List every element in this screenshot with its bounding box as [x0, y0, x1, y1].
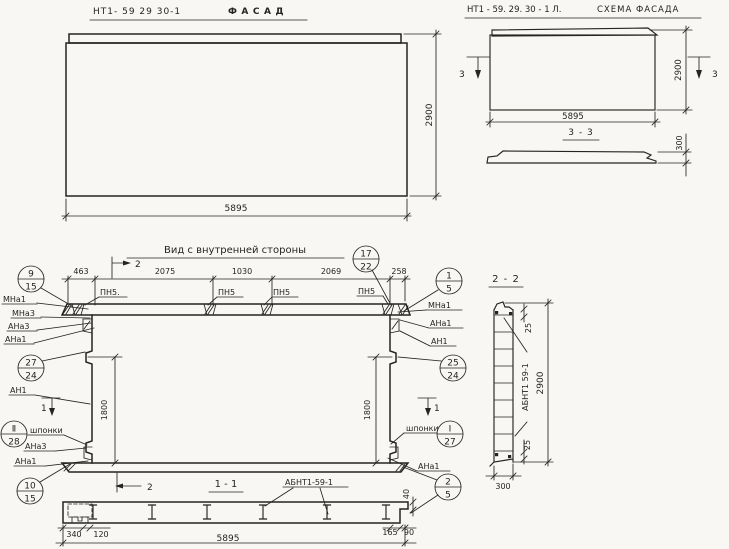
inner-view-title: Вид с внутренней стороны: [164, 245, 306, 256]
side-dim-left: 1800: [88, 354, 122, 466]
ladder-height-label: 2900: [536, 371, 546, 394]
pn5-label-3: ПН5: [273, 288, 290, 297]
edge-dim-top-label: 25: [524, 323, 533, 333]
callout-25-24: 25 24: [398, 355, 466, 382]
schema-width-label: 5895: [562, 112, 584, 122]
callout-1-5-top: 1: [446, 272, 452, 282]
facade-height-label: 2900: [425, 103, 435, 126]
schema-cut-left: 3: [459, 57, 489, 80]
cut-1-marker-left: 1: [41, 398, 60, 416]
callout-10-15-top: 10: [24, 482, 36, 492]
dim-258: 258: [391, 267, 406, 276]
mark-an1-left-text: АН1: [10, 386, 27, 395]
dim-463: 463: [73, 267, 88, 276]
callout-2-5-top: 2: [445, 478, 451, 488]
ladder-width-label: 300: [495, 482, 510, 491]
hidden-detail-dashed: [68, 504, 92, 517]
callout-1-5-bottom: 5: [446, 285, 452, 295]
callout-II-28-top: Ⅱ: [12, 425, 16, 435]
technical-drawing-sheet: НТ1- 59 29 30-1 ФАСАД 5895 2900 НТ1 - 59…: [0, 0, 729, 549]
callout-9-15-bottom: 15: [25, 283, 36, 293]
dim-1030: 1030: [232, 267, 252, 276]
callout-25-24-bottom: 24: [447, 372, 459, 382]
section-bar-outline: [63, 502, 408, 523]
schema-view: НТ1 - 59. 29. 30 - 1 Л. СХЕМА ФАСАДА 3 3…: [459, 5, 718, 176]
callout-27-24: 27 24: [18, 352, 85, 382]
dim-2075: 2075: [155, 267, 175, 276]
pn5-labels: ПН5. ПН5 ПН5 ПН5: [85, 287, 388, 305]
marks-left-bottom: АНа3 АНа1: [14, 442, 88, 466]
mark-ana3-left: АНа3: [8, 322, 29, 331]
callout-I-27-top: Ⅰ: [449, 425, 452, 435]
section-3-3-title: 3 - 3: [568, 128, 593, 138]
callout-I-27: Ⅰ 27: [437, 421, 463, 448]
callout-2-5: 2 5: [403, 467, 461, 513]
cut-1-marker-right: 1: [418, 398, 440, 416]
side-dim-right: 1800: [363, 354, 392, 466]
cut-1-right-label: 1: [434, 404, 440, 414]
marks-left-top: МНа1 МНа3 АНа3 АНа1: [2, 295, 94, 344]
schema-height-dim: [650, 26, 692, 114]
item-label-abnt-text: АБНТ1-59-1: [285, 478, 333, 487]
callout-II-28: Ⅱ 28: [1, 421, 27, 448]
callout-9-15: 9 15: [18, 266, 72, 306]
schema-outline: [490, 28, 657, 110]
panel-outline: [62, 304, 410, 472]
callout-17-22-bottom: 22: [360, 263, 371, 273]
callout-27-24-top: 27: [25, 359, 36, 369]
pn5-label-4: ПН5: [358, 287, 375, 296]
facade-outline: [66, 34, 407, 196]
facade-width-label: 5895: [225, 204, 248, 214]
drawing-canvas: НТ1- 59 29 30-1 ФАСАД 5895 2900 НТ1 - 59…: [0, 0, 729, 549]
section-3-3-profile: [487, 151, 656, 163]
bar-dim-120: 120: [93, 530, 108, 539]
schema-part-number: НТ1 - 59. 29. 30 - 1 Л.: [467, 5, 561, 15]
edge-dim-bottom-label: 25: [523, 440, 532, 450]
callout-2-5-bottom: 5: [445, 491, 451, 501]
anchor-symbols: [90, 505, 390, 519]
item-label-abnt: АБНТ1-59-1: [265, 478, 348, 514]
mark-mna1-right: МНа1: [428, 301, 451, 310]
facade-part-number: НТ1- 59 29 30-1: [93, 7, 181, 17]
schema-title: СХЕМА ФАСАДА: [597, 5, 679, 15]
keys-label-right: шпонки: [391, 424, 439, 444]
cut-2-bottom-label: 2: [147, 483, 153, 493]
section-2-2-title: 2 - 2: [492, 274, 520, 285]
facade-title: ФАСАД: [228, 7, 288, 17]
cut-2-marker-bottom: 2: [115, 473, 153, 493]
edge-dim-top: 25: [521, 304, 533, 333]
mark-ana1-right-bottom-text: АНа1: [418, 462, 439, 471]
mark-an1-right: АН1: [431, 337, 448, 346]
bar-dim-340: 340: [66, 530, 81, 539]
lip-dim-label: 40: [402, 489, 411, 499]
section-1-1-title: 1 - 1: [215, 479, 238, 490]
ladder-width-dim: 300: [486, 464, 521, 491]
bar-dim-total: 5895: [217, 534, 240, 544]
facade-height-dim: [404, 30, 441, 200]
mark-ana1-left: АНа1: [5, 335, 26, 344]
schema-cut-left-label: 3: [459, 70, 465, 80]
callout-17-22-top: 17: [360, 250, 371, 260]
callout-II-28-bottom: 28: [8, 438, 20, 448]
section-2-2: 2 - 2 25 25 2900 АБНТ1 59-1: [486, 274, 553, 491]
callout-27-24-bottom: 24: [25, 372, 37, 382]
mark-ana1-right: АНа1: [430, 319, 451, 328]
schema-cut-right: 3: [688, 57, 718, 80]
cut-2-top-label: 2: [135, 260, 141, 270]
cut-2-marker-top: 2: [112, 257, 141, 278]
ladder-item-label: АБНТ1 59-1: [504, 318, 530, 436]
ladder-rungs: [494, 315, 513, 451]
ladder-item-text: АБНТ1 59-1: [521, 363, 530, 411]
section-1-1: 2 1 - 1 АБНТ1-59-1 340 120 165 90 5895: [56, 473, 416, 546]
callout-25-24-top: 25: [447, 359, 458, 369]
pn5-label-1: ПН5.: [100, 288, 120, 297]
schema-height-label: 2900: [674, 59, 684, 81]
pn5-label-2: ПН5: [218, 288, 235, 297]
facade-view: НТ1- 59 29 30-1 ФАСАД 5895 2900: [62, 7, 441, 221]
mark-ana3-left-bottom: АНа3: [25, 442, 46, 451]
bar-dim-90: 90: [404, 528, 414, 537]
callout-9-15-top: 9: [28, 270, 34, 280]
mark-mna1-left: МНа1: [3, 295, 26, 304]
mark-ana1-left-bottom: АНа1: [15, 457, 36, 466]
dim-2069: 2069: [321, 267, 341, 276]
mark-an1-left: АН1: [9, 386, 90, 404]
schema-thickness-label: 300: [675, 135, 684, 150]
keys-right-text: шпонки: [406, 424, 439, 433]
bar-left-tongue: [72, 517, 88, 523]
mark-mna3-left: МНа3: [12, 309, 35, 318]
callout-I-27-bottom: 27: [444, 438, 455, 448]
keys-left-text: шпонки: [30, 426, 63, 435]
cut-1-left-label: 1: [41, 404, 47, 414]
edge-dim-bottom: 25: [521, 440, 532, 464]
side-dim-right-label: 1800: [363, 400, 372, 420]
ladder-anchor-dots: [495, 311, 512, 458]
inner-view: Вид с внутренней стороны 463 2075 1030 2…: [1, 245, 466, 516]
schema-cut-right-label: 3: [712, 70, 718, 80]
callout-10-15: 10 15: [17, 464, 70, 505]
side-dim-left-label: 1800: [100, 400, 109, 420]
corner-details: [83, 319, 399, 460]
callout-10-15-bottom: 15: [24, 495, 35, 505]
bar-dim-165: 165: [382, 528, 397, 537]
